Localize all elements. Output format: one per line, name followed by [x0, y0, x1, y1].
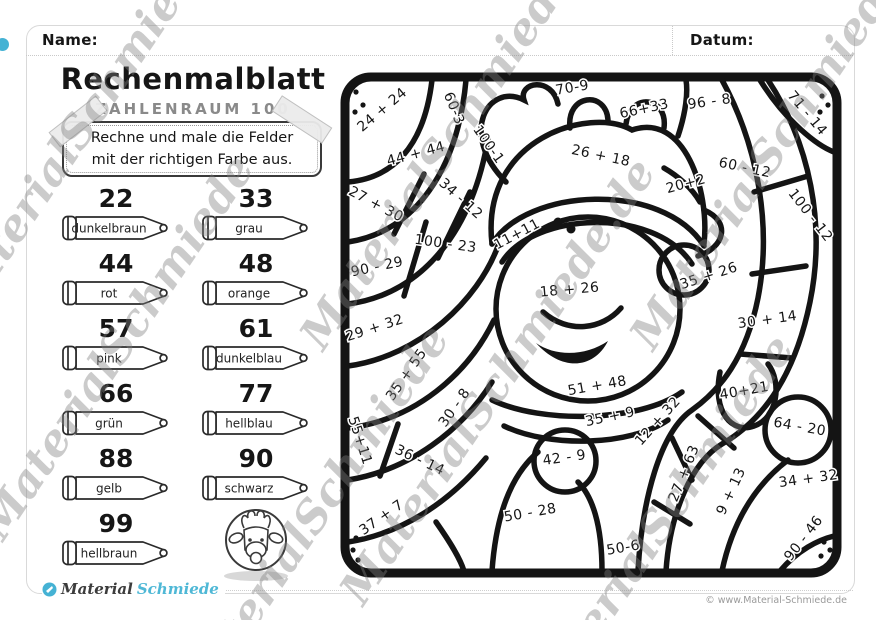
color-name-label: schwarz: [225, 482, 274, 496]
name-label: Name:: [42, 31, 98, 49]
legend-number: 44: [99, 251, 134, 276]
color-name-label: grün: [95, 417, 123, 431]
legend-item-rot: 44rot: [46, 251, 186, 316]
legend-item-pink: 57pink: [46, 316, 186, 381]
coloring-picture: 24 + 2460-370-966+3396 - 871 - 1444 + 44…: [340, 72, 842, 578]
legend-number: 61: [239, 316, 274, 341]
crayon-pink: pink: [61, 344, 171, 372]
worksheet-page: Name: Datum: Rechenmalblatt ZAHLENRAUM 1…: [0, 0, 876, 620]
legend-item-orange: 48orange: [186, 251, 326, 316]
legend-number: 22: [99, 186, 134, 211]
instruction-line-2: mit der richtigen Farbe aus.: [64, 149, 320, 171]
legend-number: 90: [239, 446, 274, 471]
brand-name-second: Schmiede: [137, 580, 219, 598]
crayon-schwarz: schwarz: [201, 474, 311, 502]
legend-number: 88: [99, 446, 134, 471]
accent-dot: [0, 38, 9, 51]
footer-logo: Material Schmiede: [42, 580, 225, 598]
crayon-rot: rot: [61, 279, 171, 307]
color-legend: 22dunkelbraun33grau44rot48orange57pink61…: [46, 186, 326, 576]
legend-item-hellblau: 77hellblau: [186, 381, 326, 446]
crayon-orange: orange: [201, 279, 311, 307]
header-divider: [26, 55, 853, 56]
datum-label: Datum:: [690, 31, 754, 49]
color-name-label: pink: [96, 352, 122, 366]
legend-number: 77: [239, 381, 274, 406]
color-name-label: hellblau: [225, 417, 273, 431]
color-name-label: gelb: [96, 482, 122, 496]
header-vertical-divider: [672, 26, 673, 55]
legend-number: 99: [99, 511, 134, 536]
legend-item-dunkelbraun: 22dunkelbraun: [46, 186, 186, 251]
color-name-label: dunkelbraun: [71, 222, 146, 236]
color-name-label: grau: [235, 222, 263, 236]
crayon-grau: grau: [201, 214, 311, 242]
legend-item-grün: 66grün: [46, 381, 186, 446]
reindeer-emblem: [186, 511, 326, 576]
color-name-label: orange: [228, 287, 270, 301]
color-name-label: rot: [101, 287, 118, 301]
crayon-hellbraun: hellbraun: [61, 539, 171, 567]
footer-divider: [150, 590, 853, 591]
crayon-hellblau: hellblau: [201, 409, 311, 437]
crayon-dunkelbraun: dunkelbraun: [61, 214, 171, 242]
color-name-label: dunkelblau: [216, 352, 282, 366]
crayon-grün: grün: [61, 409, 171, 437]
legend-number: 57: [99, 316, 134, 341]
brand-name-first: Material: [61, 580, 133, 598]
legend-item-hellbraun: 99hellbraun: [46, 511, 186, 576]
brand-icon: [42, 582, 57, 597]
reindeer-badge-icon: [211, 502, 301, 586]
legend-number: 66: [99, 381, 134, 406]
crayon-dunkelblau: dunkelblau: [201, 344, 311, 372]
instruction-line-1: Rechne und male die Felder: [64, 127, 320, 149]
legend-item-dunkelblau: 61dunkelblau: [186, 316, 326, 381]
legend-item-gelb: 88gelb: [46, 446, 186, 511]
page-title: Rechenmalblatt: [58, 62, 328, 96]
instruction-box: Rechne und male die Felder mit der richt…: [62, 121, 322, 177]
crayon-gelb: gelb: [61, 474, 171, 502]
legend-item-grau: 33grau: [186, 186, 326, 251]
legend-number: 48: [239, 251, 274, 276]
copyright-text: © www.Material-Schmiede.de: [705, 595, 847, 606]
legend-number: 33: [239, 186, 274, 211]
color-name-label: hellbraun: [81, 547, 138, 561]
